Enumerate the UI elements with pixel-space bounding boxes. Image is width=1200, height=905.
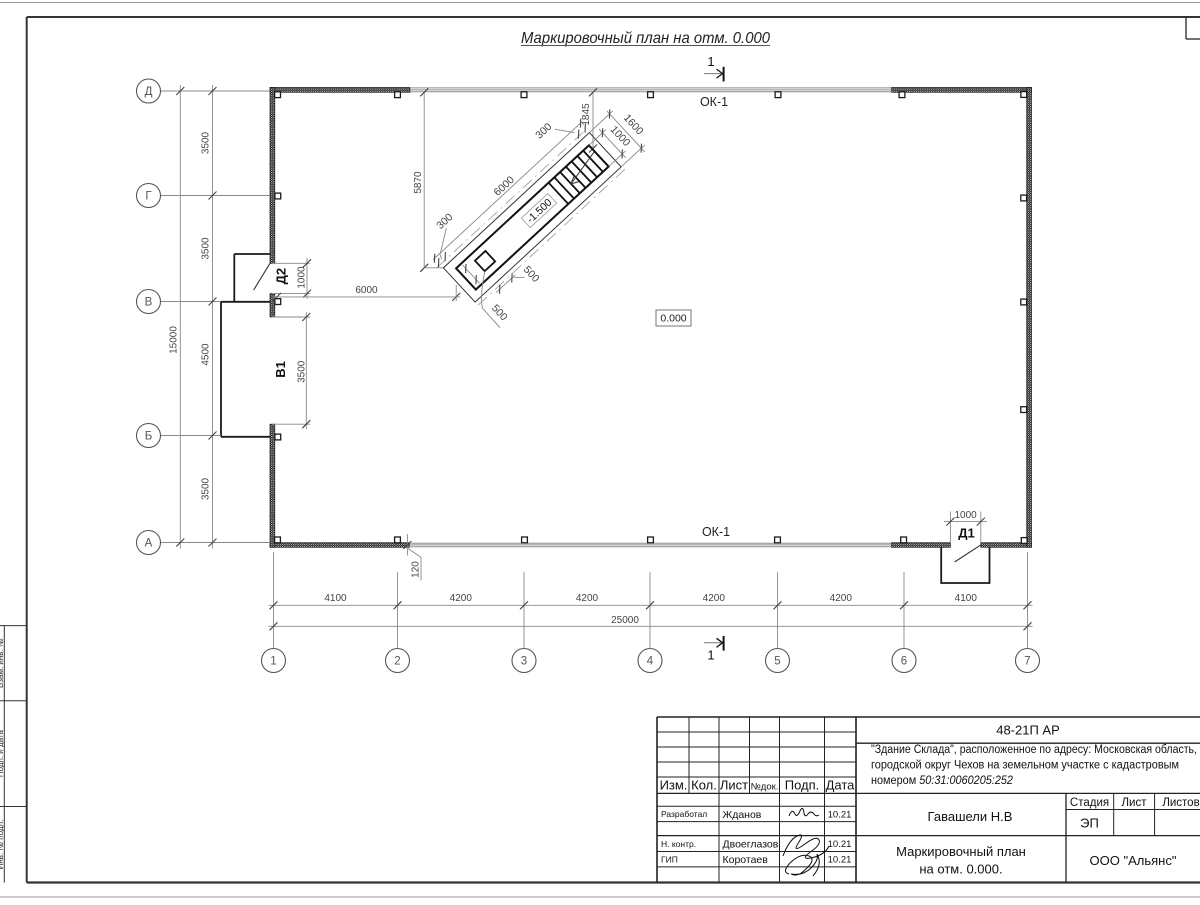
svg-text:ОК-1: ОК-1 (702, 525, 730, 539)
svg-text:Разработал: Разработал (661, 809, 707, 819)
svg-text:Инв. № подл.: Инв. № подл. (0, 820, 5, 870)
svg-text:Коротаев: Коротаев (723, 854, 769, 866)
svg-text:ЭП: ЭП (1080, 816, 1099, 831)
svg-text:на отм. 0.000.: на отм. 0.000. (919, 862, 1002, 877)
svg-text:№док.: №док. (751, 782, 779, 793)
svg-text:1000: 1000 (296, 266, 307, 289)
svg-text:Дата: Дата (826, 778, 856, 793)
svg-text:Листов: Листов (1162, 797, 1199, 809)
svg-text:10.21: 10.21 (828, 839, 852, 850)
svg-text:Н. контр.: Н. контр. (661, 839, 696, 849)
svg-text:0.000: 0.000 (660, 313, 686, 325)
svg-text:А: А (145, 538, 153, 550)
svg-text:48-21П АР: 48-21П АР (996, 723, 1060, 738)
svg-text:Стадия: Стадия (1070, 797, 1109, 809)
svg-text:25000: 25000 (611, 615, 639, 626)
svg-text:ГИП: ГИП (661, 854, 678, 864)
svg-text:Маркировочный план на отм. 0.0: Маркировочный план на отм. 0.000 (521, 30, 770, 47)
svg-text:10.21: 10.21 (828, 810, 852, 821)
svg-text:Гавашели Н.В: Гавашели Н.В (928, 809, 1013, 824)
svg-text:4100: 4100 (324, 593, 347, 604)
svg-text:5: 5 (774, 656, 780, 668)
svg-text:ОК-1: ОК-1 (700, 95, 728, 109)
svg-text:4500: 4500 (200, 343, 211, 366)
svg-text:1845: 1845 (581, 103, 592, 126)
svg-text:В: В (145, 297, 153, 309)
svg-text:120: 120 (410, 561, 421, 578)
svg-text:Подп. и дата: Подп. и дата (0, 729, 5, 777)
svg-text:7: 7 (1024, 656, 1030, 668)
svg-text:1: 1 (707, 648, 714, 663)
svg-text:4200: 4200 (703, 593, 726, 604)
svg-text:4100: 4100 (955, 593, 978, 604)
svg-text:1000: 1000 (954, 510, 977, 521)
svg-text:5870: 5870 (413, 171, 424, 194)
svg-text:Двоеглазов: Двоеглазов (723, 839, 779, 851)
svg-text:6000: 6000 (355, 285, 378, 296)
svg-text:Подп.: Подп. (785, 778, 820, 793)
svg-text:3: 3 (521, 656, 527, 668)
svg-text:2: 2 (394, 656, 400, 668)
svg-text:Д1: Д1 (958, 526, 975, 541)
svg-text:1: 1 (707, 54, 714, 69)
svg-text:Маркировочный план: Маркировочный план (896, 844, 1026, 859)
svg-text:4200: 4200 (830, 593, 853, 604)
svg-text:4200: 4200 (450, 593, 473, 604)
svg-text:Лист: Лист (1122, 797, 1148, 809)
svg-text:Изм.: Изм. (660, 778, 688, 793)
svg-text:1: 1 (270, 656, 276, 668)
svg-text:ООО "Альянс": ООО "Альянс" (1090, 853, 1177, 868)
svg-text:4200: 4200 (576, 593, 599, 604)
svg-text:3500: 3500 (297, 360, 308, 383)
svg-text:"Здание Склада", расположенное: "Здание Склада", расположенное по адресу… (871, 744, 1197, 756)
svg-text:Жданов: Жданов (723, 809, 762, 821)
svg-text:В1: В1 (273, 361, 288, 378)
svg-text:3500: 3500 (200, 237, 211, 260)
svg-text:Д: Д (145, 86, 153, 98)
svg-text:10.21: 10.21 (828, 855, 852, 866)
svg-text:Кол.: Кол. (691, 778, 717, 793)
svg-text:3500: 3500 (200, 477, 211, 500)
svg-text:Б: Б (145, 431, 153, 443)
svg-text:3500: 3500 (200, 131, 211, 154)
svg-text:номером 50:31:0060205:252: номером 50:31:0060205:252 (871, 775, 1014, 787)
svg-text:15000: 15000 (168, 326, 179, 354)
svg-text:4: 4 (647, 656, 654, 668)
svg-text:Г: Г (145, 191, 152, 203)
svg-text:Лист: Лист (720, 778, 748, 793)
svg-text:Взам. инв. №: Взам. инв. № (0, 638, 5, 688)
svg-text:городской округ Чехов на земел: городской округ Чехов на земельном участ… (871, 759, 1179, 771)
svg-text:6: 6 (901, 656, 907, 668)
svg-text:Д2: Д2 (274, 268, 289, 285)
